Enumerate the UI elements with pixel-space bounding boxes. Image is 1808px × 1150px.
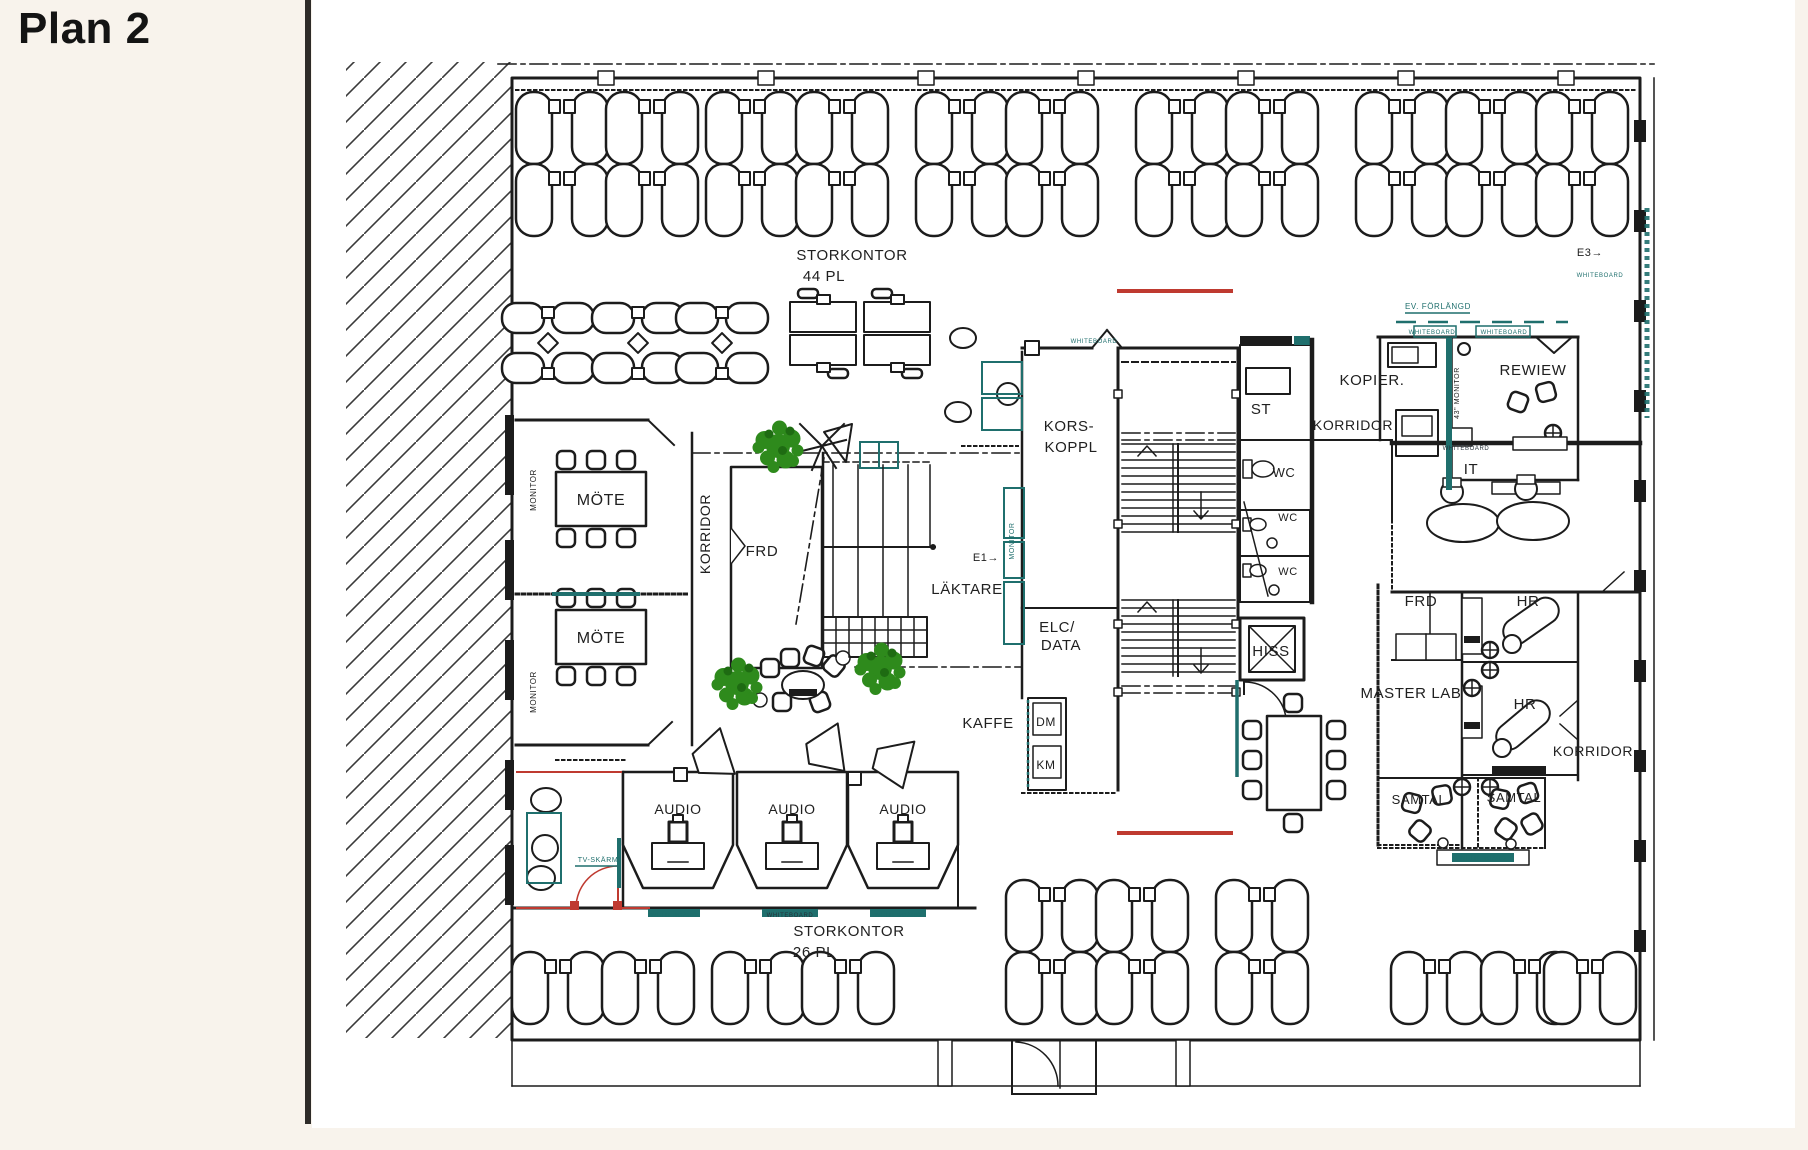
plan-label: E1→ [973, 552, 999, 564]
plan-label: E3→ [1577, 247, 1603, 259]
plan-label: HISS [1252, 643, 1289, 660]
plan-label: REWIEW [1500, 362, 1567, 379]
plan-label: SAMTAL [1487, 790, 1542, 805]
plan-label: FRD [1405, 593, 1438, 610]
plan-label: DM [1036, 715, 1056, 729]
plan-label: WHITEBOARD [1071, 339, 1118, 345]
plan-label: WHITEBOARD [1460, 856, 1507, 862]
plan-label: WHITEBOARD [767, 913, 814, 919]
plan-label: KORRIDOR [697, 494, 713, 574]
plan-label: IT [1464, 461, 1479, 478]
plan-label: DATA [1041, 637, 1081, 654]
plan-label: KOPPL [1044, 439, 1097, 456]
plan-label: MÖTE [577, 491, 626, 509]
plan-label: WHITEBOARD [1577, 273, 1624, 279]
plan-label: TV-SKÄRM [578, 856, 619, 864]
plan-label: MONITOR [529, 671, 538, 713]
plan-label: KAFFE [962, 715, 1013, 732]
plan-label: MÖTE [577, 629, 626, 647]
plan-label: AUDIO [654, 801, 701, 817]
plan-label: STORKONTOR [793, 923, 904, 940]
plan-label: SAMTAL [1392, 792, 1447, 807]
plan-label: KORS- [1044, 418, 1095, 435]
page: Plan 2 [0, 0, 1808, 1150]
plan-label: KOPIER. [1339, 372, 1404, 389]
plan-label: MASTER LAB [1360, 685, 1461, 702]
plan-label: AUDIO [768, 801, 815, 817]
plan-label: HR [1514, 696, 1537, 713]
plan-label: MONITOR [529, 469, 538, 511]
plan-label: LÄKTARE [931, 581, 1002, 598]
plan-label: FRD [746, 543, 779, 560]
plan-label: WHITEBOARD [1443, 446, 1490, 452]
plan-label: 44 PL [803, 268, 845, 285]
plan-label: WC [1273, 465, 1296, 480]
plan-label: KORRIDOR [1553, 743, 1633, 759]
plan-label: ELC/ [1039, 619, 1075, 636]
plan-label: WC [1278, 566, 1298, 578]
plan-label: WHITEBOARD [1481, 330, 1528, 336]
plan-label: STORKONTOR [796, 247, 907, 264]
plan-label: KORRIDOR [1313, 417, 1393, 433]
plan-label: WHITEBOARD [875, 913, 922, 919]
hatch-area [346, 62, 512, 1038]
floor-plan: STORKONTOR44 PLMONITORMÖTEMONITORMÖTEKOR… [0, 0, 1808, 1150]
plan-label: MONITOR [1009, 522, 1016, 559]
plan-label: 26 PL [793, 944, 835, 961]
plan-label: WC [1278, 512, 1298, 524]
plan-label: KM [1036, 758, 1055, 772]
plan-label: ST [1251, 401, 1271, 418]
plan-label: WHITEBOARD [1409, 330, 1456, 336]
plan-label: AUDIO [879, 801, 926, 817]
plan-label: WHITEBOARD [651, 913, 698, 919]
plan-label: 43" MONITOR [1454, 367, 1461, 419]
plan-label: EV. FÖRLÄNGD [1405, 302, 1471, 311]
plan-label: HR [1517, 593, 1540, 610]
